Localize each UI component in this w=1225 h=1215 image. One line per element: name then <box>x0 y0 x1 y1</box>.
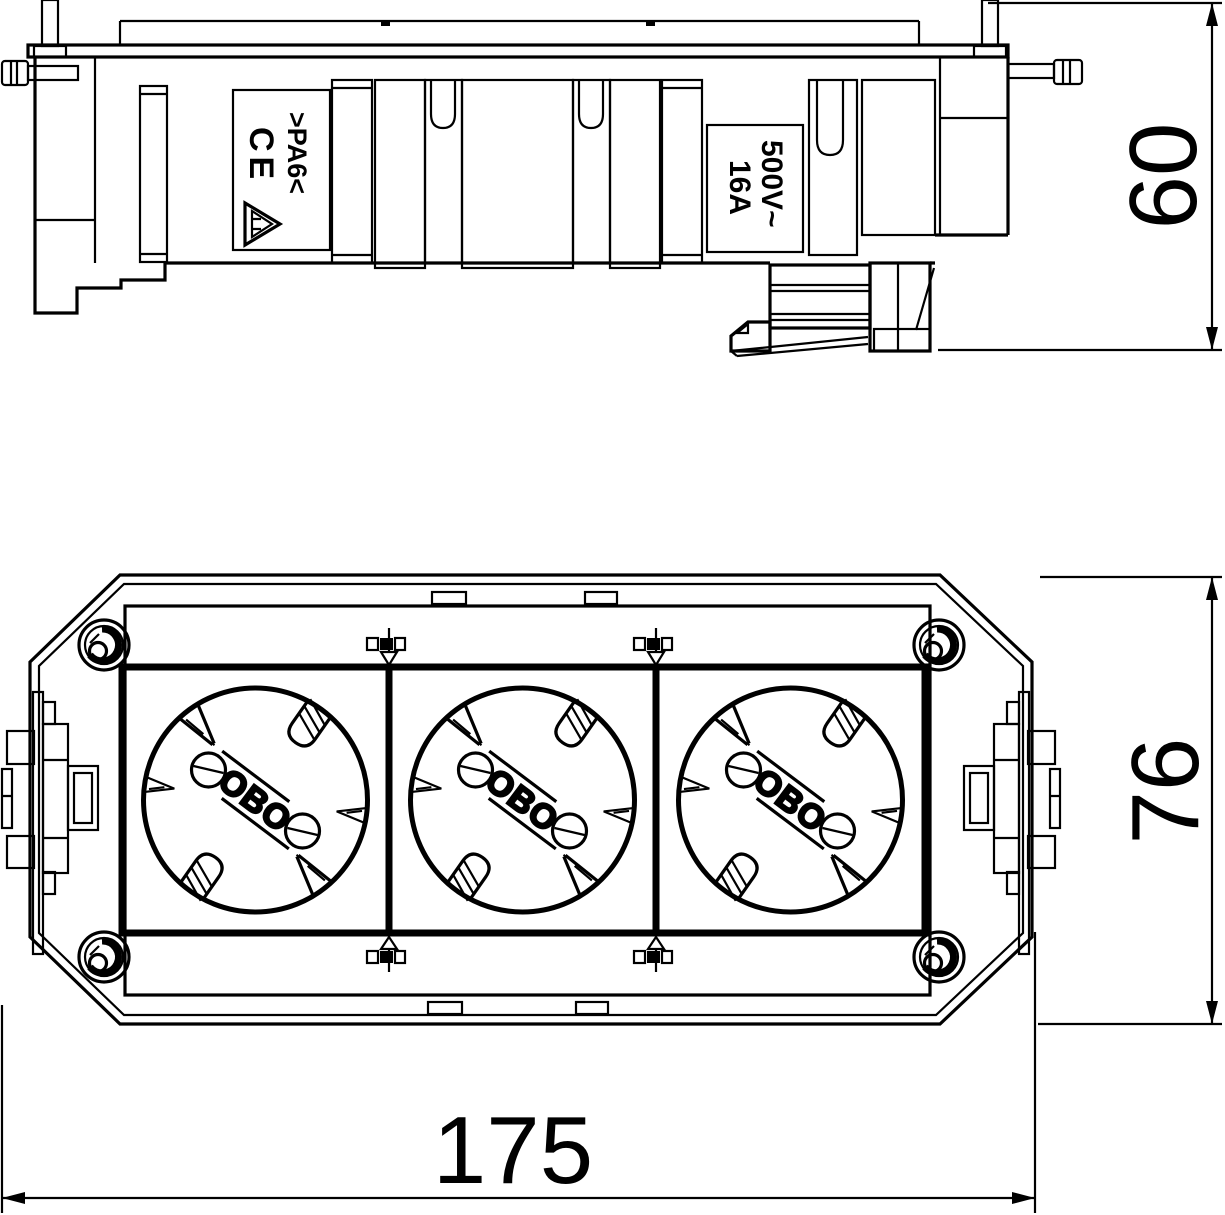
mounting-claw <box>731 263 934 356</box>
fixing-pin-right <box>974 0 1006 57</box>
frame-rim <box>28 45 1008 57</box>
dimension-depth-value: 76 <box>1112 738 1219 845</box>
front-view <box>2 575 1060 1024</box>
arrowhead-up-icon <box>1206 577 1218 600</box>
technical-drawing-page: OBO <box>0 0 1225 1215</box>
connector-mark-top-1 <box>367 628 405 665</box>
edge-slot <box>428 1002 462 1014</box>
latch-slot <box>817 80 843 155</box>
side-screw-left <box>2 61 78 85</box>
arrowhead-up-icon <box>1206 3 1218 26</box>
dimension-depth-76: 76 <box>1038 577 1222 1024</box>
rating-label-plate: 500V~ 16A <box>707 125 803 252</box>
side-view: CE >PA6< 500V~ 16A <box>2 0 1082 356</box>
latch-slot <box>431 80 455 128</box>
corner-screw-top-right <box>914 620 964 670</box>
socket-2 <box>409 688 635 912</box>
current-rating-text: 16A <box>723 160 756 215</box>
connector-mark-bottom-1 <box>367 937 405 972</box>
approval-label-plate: CE >PA6< <box>233 90 330 250</box>
fixing-pin-left <box>34 0 66 57</box>
edge-slot <box>432 592 466 604</box>
voltage-rating-text: 500V~ <box>755 140 788 228</box>
dimension-length-value: 175 <box>433 1097 593 1204</box>
latch-left <box>2 692 98 954</box>
socket-1 <box>142 688 368 912</box>
dimension-height-value: 60 <box>1110 123 1217 230</box>
corner-screw-bottom-left <box>79 932 129 982</box>
arrowhead-down-icon <box>1206 1001 1218 1024</box>
drawing-svg: OBO <box>0 0 1225 1215</box>
edge-slot <box>576 1002 608 1014</box>
connector-mark-bottom-2 <box>634 937 672 972</box>
material-marking-text: >PA6< <box>282 112 312 194</box>
arrowhead-left-icon <box>2 1192 25 1204</box>
edge-slot <box>585 592 617 604</box>
side-screw-right <box>1008 60 1082 84</box>
latch-right <box>964 692 1060 954</box>
socket-3 <box>677 688 903 912</box>
connector-mark-top-2 <box>634 628 672 665</box>
vde-triangle-icon <box>245 203 280 245</box>
arrowhead-right-icon <box>1012 1192 1035 1204</box>
mounting-foot-left <box>35 263 165 313</box>
dimension-height-60: 60 <box>938 3 1222 350</box>
latch-slot <box>579 80 603 128</box>
dimension-length-175: 175 <box>2 932 1035 1213</box>
corner-screw-top-left <box>79 620 129 670</box>
corner-screw-bottom-right <box>914 932 964 982</box>
arrowhead-down-icon <box>1206 327 1218 350</box>
ce-mark-text: CE <box>242 127 280 184</box>
